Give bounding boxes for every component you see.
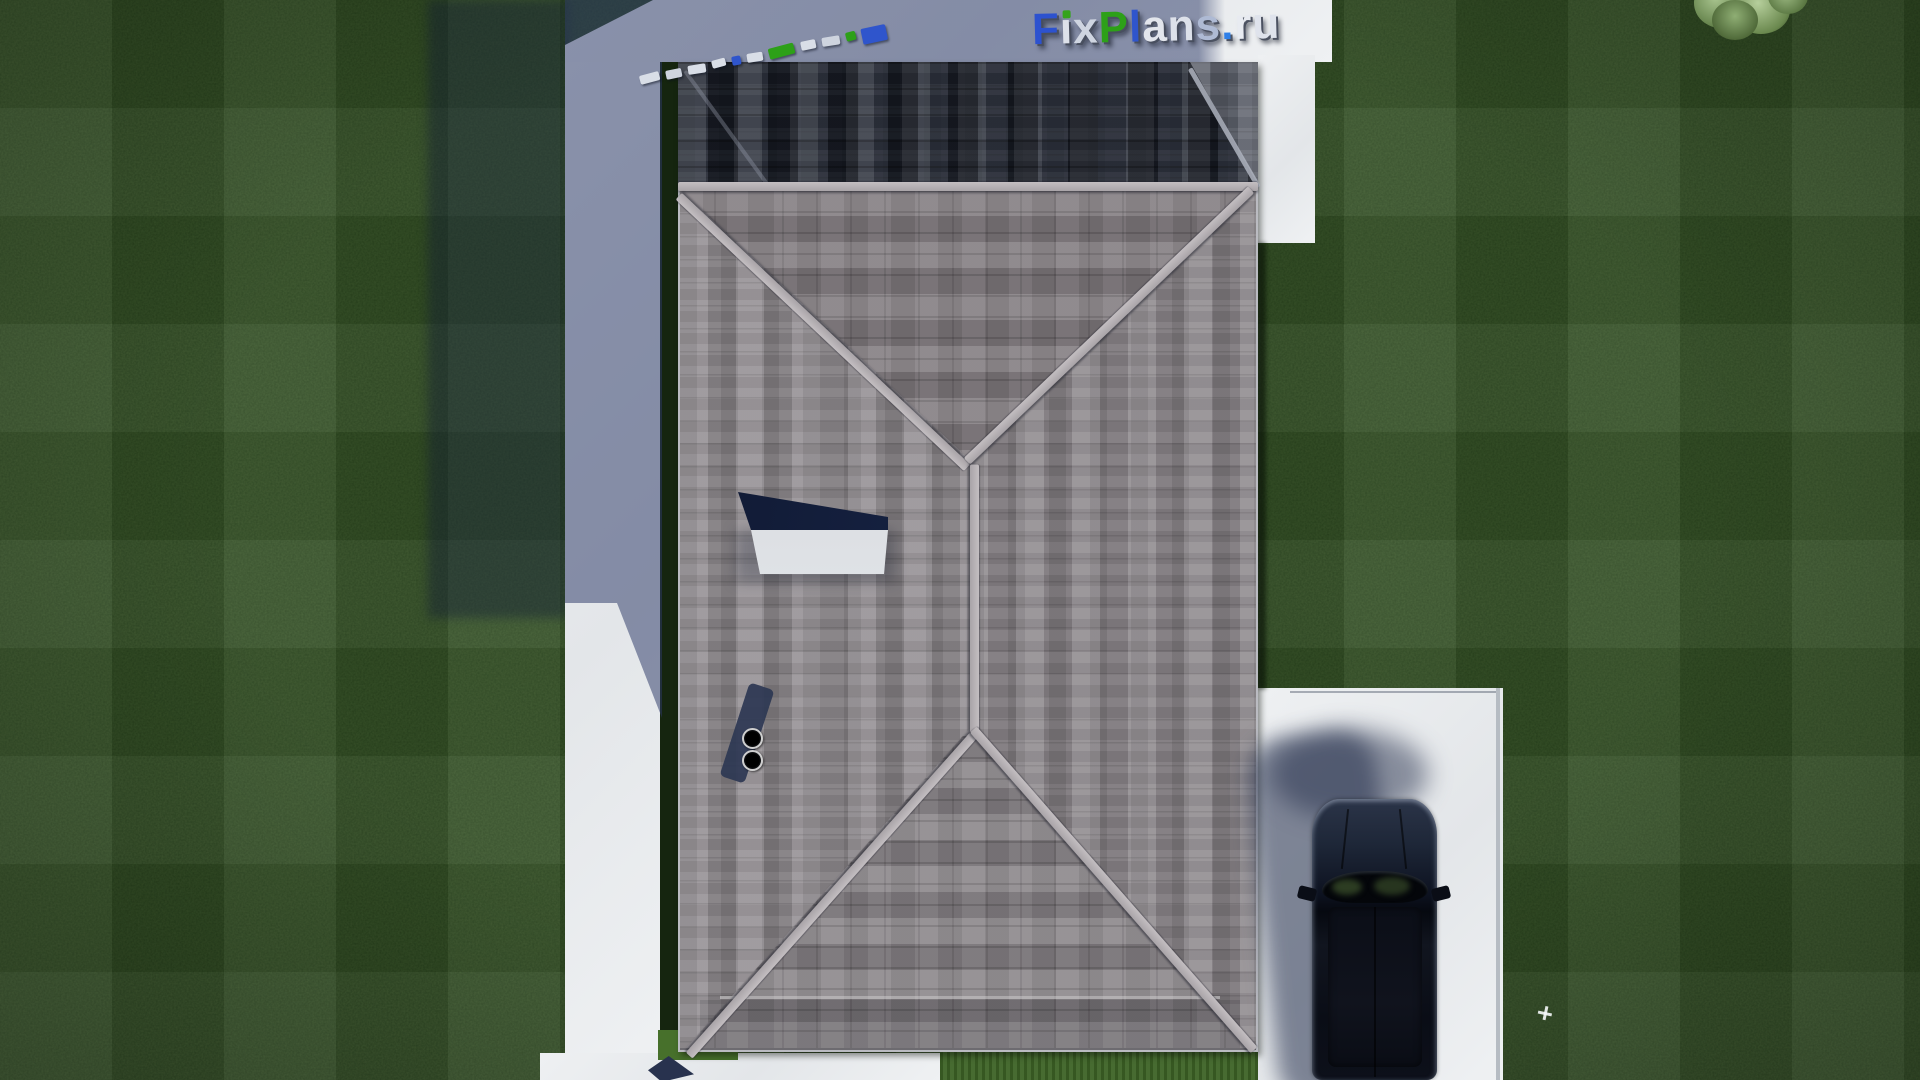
car-roof-centerline bbox=[1374, 907, 1376, 1077]
driveway-edge-seam bbox=[1496, 688, 1500, 1080]
tree-foliage bbox=[1688, 0, 1818, 44]
watermark-letter: u bbox=[1252, 0, 1281, 49]
sunlit-grass-strip bbox=[940, 1050, 1258, 1080]
watermark-letter: x bbox=[1072, 4, 1099, 55]
roof-bottom-eave-line bbox=[720, 996, 1220, 999]
roof-main-slopes bbox=[680, 190, 1256, 1048]
right-side-path bbox=[1258, 55, 1315, 243]
watermark-letter: F bbox=[1031, 5, 1060, 56]
chimney-pipe-1 bbox=[742, 728, 763, 749]
watermark-letter: r bbox=[1234, 0, 1253, 50]
house-hip-roof bbox=[678, 62, 1258, 1052]
ridge-cap-main-horizontal bbox=[678, 182, 1258, 191]
roof-dark-band-checker bbox=[678, 62, 1258, 185]
watermark-letter: n bbox=[1167, 1, 1196, 52]
sprinkler-marker bbox=[1537, 1005, 1554, 1022]
car-windshield bbox=[1322, 871, 1428, 903]
bottom-path bbox=[540, 1053, 940, 1080]
parked-car bbox=[1296, 795, 1446, 1080]
roof-eave-shadow-on-grass bbox=[1258, 243, 1266, 689]
ridge-cap-center-vertical bbox=[970, 465, 979, 733]
watermark-letter: s bbox=[1195, 0, 1222, 51]
house-shadow-on-grass bbox=[428, 0, 568, 618]
letter-i-dot bbox=[1062, 10, 1070, 18]
watermark-letter: a bbox=[1142, 2, 1169, 53]
watermark-logo: FıxPlans.ru bbox=[1031, 0, 1281, 55]
watermark-letter: P bbox=[1098, 3, 1130, 54]
aerial-house-render: FıxPlans.ru bbox=[0, 0, 1920, 1080]
driveway-joint-line bbox=[1290, 691, 1500, 693]
chimney-pipe-2 bbox=[742, 750, 763, 771]
grass-sliver-left-of-house bbox=[660, 62, 678, 1057]
roof-bottom-shade-band bbox=[700, 1000, 1240, 1048]
